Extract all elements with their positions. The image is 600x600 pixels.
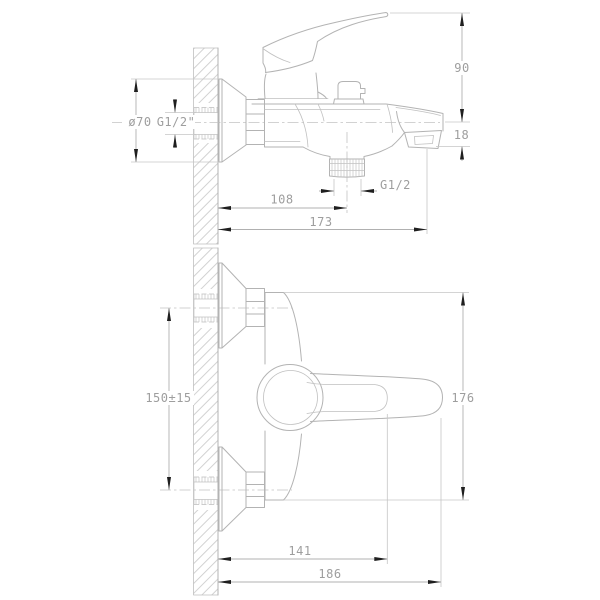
wall-hatch-upper — [194, 48, 219, 244]
outlet-thread-knurl — [330, 159, 365, 178]
dim-label-150-15: 150±15 — [145, 391, 191, 405]
lever-outline-top-view — [311, 374, 443, 422]
dim-label-108: 108 — [270, 193, 293, 207]
dim-shower-outlet-thread: G1/2 — [319, 178, 411, 196]
arrowhead-up — [167, 308, 171, 321]
technical-drawing-page: ø70 G1/2" 90 18 G1/2 108 — [0, 0, 600, 600]
arrowhead-up — [460, 147, 464, 160]
arrowhead-down — [134, 149, 138, 162]
body-outline-top-view — [265, 293, 302, 501]
arrowhead-left — [361, 189, 374, 193]
shower-outlet-bell — [303, 146, 392, 177]
spout-aerator-detail — [387, 104, 441, 145]
technical-drawing-canvas: ø70 G1/2" 90 18 G1/2 108 — [0, 0, 600, 600]
escutcheon-side-view — [219, 79, 246, 162]
arrowhead-down — [173, 100, 177, 113]
escutcheon-bottom-connection — [219, 447, 246, 531]
dim-wall-to-outlet-108: 108 — [218, 193, 347, 211]
arrowhead-right — [334, 206, 347, 210]
diverter-knob — [334, 82, 366, 105]
wall-section-lower — [193, 248, 219, 595]
dim-label-90: 90 — [454, 61, 469, 75]
arrowhead-up — [460, 13, 464, 26]
dim-label-inlet-thread: G1/2" — [157, 115, 196, 129]
dim-label-18: 18 — [454, 128, 469, 142]
extension-lines — [334, 179, 361, 196]
dim-wall-to-lever-end-186: 186 — [218, 567, 441, 584]
escutcheon-top-connection — [219, 263, 246, 348]
wall-section-upper — [193, 48, 219, 244]
dim-label-outlet-thread: G1/2 — [380, 178, 411, 192]
extension-lines — [284, 293, 469, 588]
dim-label-186: 186 — [318, 567, 341, 581]
arrowhead-down — [167, 477, 171, 490]
arrowhead-right — [321, 189, 334, 193]
arrowhead-left — [218, 206, 231, 210]
arrowhead-down — [461, 487, 465, 500]
arrowhead-up — [461, 293, 465, 306]
arrowhead-left — [218, 228, 231, 232]
arrowhead-up — [134, 79, 138, 92]
lever-handle-side — [263, 13, 388, 73]
arrowhead-right — [428, 580, 441, 584]
dim-handle-height-90: 90 — [390, 13, 474, 122]
arrowhead-left — [218, 557, 231, 561]
arrowhead-left — [218, 580, 231, 584]
handle-dome — [264, 73, 326, 99]
dim-label-176: 176 — [451, 391, 474, 405]
dim-connection-spacing-150: 150±15 — [143, 308, 194, 490]
arrowhead-right — [414, 228, 427, 232]
arrowhead-down — [460, 109, 464, 122]
wall-nut-top-connection — [246, 289, 265, 327]
dim-label-diameter-70: ø70 — [128, 115, 151, 129]
dim-wall-to-lever-inner-141: 141 — [218, 544, 387, 561]
lever-crease-line — [264, 49, 291, 63]
dim-label-141: 141 — [288, 544, 311, 558]
faucet-body-side — [252, 104, 386, 147]
lever-inner-line-top-view — [307, 383, 387, 414]
arrowhead-right — [374, 557, 387, 561]
dim-label-173: 173 — [309, 215, 332, 229]
dim-body-width-176: 176 — [284, 293, 477, 588]
handle-base-inner-circle — [264, 371, 318, 425]
arrowhead-up — [173, 135, 177, 148]
handle-base-outer-circle — [257, 365, 323, 431]
wall-nut-side-view — [246, 100, 265, 145]
dim-inlet-thread: G1/2" — [157, 99, 196, 148]
